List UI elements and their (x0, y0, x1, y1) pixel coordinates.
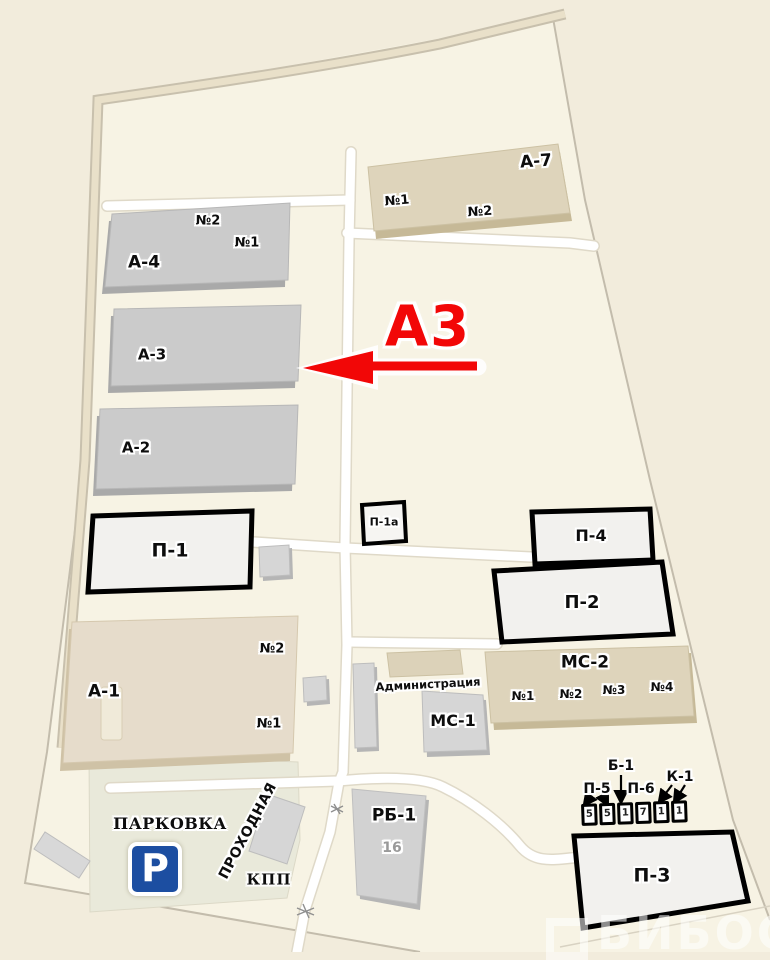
label-ms2-n4: №4 (651, 681, 674, 693)
label-a2: А-2 (122, 441, 150, 456)
label-a7: А-7 (519, 152, 552, 171)
label-p2: П-2 (564, 594, 599, 612)
label-a1-n1: №1 (257, 718, 282, 731)
label-a4: А-4 (128, 255, 160, 272)
label-a1: А-1 (88, 684, 120, 701)
label-a7-n2: №2 (467, 205, 493, 220)
label-ms2: МС-2 (561, 655, 609, 672)
section-box: 1 (617, 802, 634, 825)
label-ms1: МС-1 (430, 713, 475, 729)
label-a4-n2: №2 (196, 215, 221, 228)
label-ms2-n2: №2 (560, 688, 583, 700)
label-b1: Б-1 (608, 759, 634, 773)
label-p1a: П-1а (370, 517, 399, 528)
section-box: 5 (599, 803, 616, 826)
label-kpp: КПП (247, 873, 292, 888)
section-box-row: 5 5 1 7 1 1 (581, 800, 688, 826)
label-ms2-n1: №1 (512, 690, 535, 702)
label-rb1: РБ-1 (372, 808, 416, 825)
red-callout-a3: А3 (385, 295, 471, 360)
section-box: 1 (671, 800, 688, 823)
building-narrow (353, 663, 377, 748)
label-ms2-n3: №3 (603, 684, 626, 696)
label-p4: П-4 (575, 528, 606, 544)
building-cube-p1 (259, 545, 290, 577)
label-a1-n2: №2 (260, 643, 285, 656)
label-parking: ПАРКОВКА (113, 816, 227, 832)
label-rb1-number: 16 (382, 841, 401, 855)
building-admin (387, 650, 463, 677)
section-box: 7 (635, 802, 652, 825)
label-a3: А-3 (138, 348, 166, 363)
watermark-text: БИБОСС (597, 910, 770, 956)
label-p3: П-3 (633, 867, 670, 886)
label-a4-n1: №1 (235, 237, 260, 250)
label-p5: П-5 (583, 782, 610, 796)
section-box: 1 (653, 801, 670, 824)
section-box: 5 (581, 803, 598, 826)
parking-sign: P (128, 842, 182, 896)
road-above-a4 (107, 200, 350, 206)
watermark-icon (546, 918, 588, 960)
label-p6: П-6 (627, 782, 654, 796)
label-p1: П-1 (151, 542, 188, 561)
label-k1: К-1 (667, 770, 694, 784)
building-cube-a1 (303, 676, 327, 702)
label-a7-n1: №1 (384, 193, 410, 208)
road-to-p2 (348, 642, 497, 644)
watermark: БИБОСС (546, 910, 770, 960)
site-map: А-7 №1 №2 А-4 №2 №1 А-3 А-2 П-1 П-1а П-4… (0, 0, 770, 952)
